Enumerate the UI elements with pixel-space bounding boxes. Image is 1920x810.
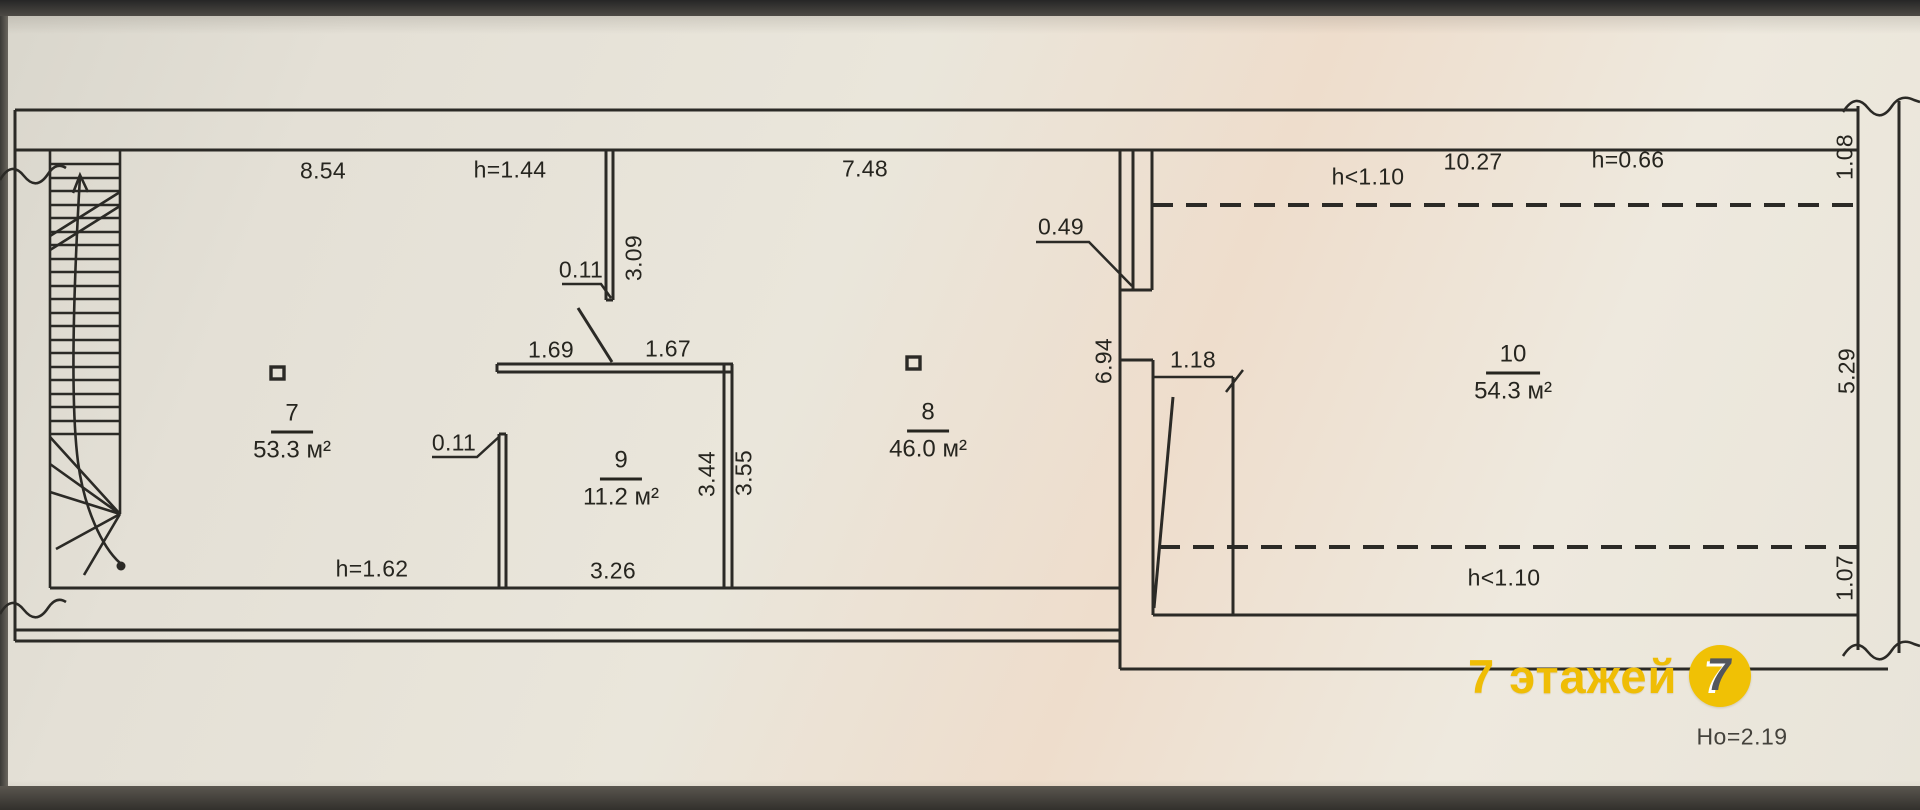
- room-label-9: 9 11.2 м²: [583, 449, 659, 510]
- dim-top-left-width: 8.54: [300, 160, 346, 183]
- dim-wall-offset-left: 0.11: [432, 432, 476, 455]
- dim-wall-offset-top: 0.11: [559, 259, 603, 282]
- dim-opening-right: 1.67: [645, 338, 691, 361]
- room-label-10: 10 54.3 м²: [1474, 343, 1552, 404]
- watermark-text: 7 этажей: [1468, 649, 1677, 704]
- dim-opening-left: 1.69: [528, 339, 574, 362]
- room-9-number: 9: [600, 449, 641, 481]
- dim-top-right-width: 10.27: [1443, 151, 1502, 174]
- dim-room9-inner-depth: 3.44: [696, 451, 719, 497]
- room-7-area: 53.3 м²: [253, 439, 331, 463]
- watermark-logo-icon: 7: [1689, 645, 1751, 707]
- dim-room9-outer-depth: 3.55: [733, 450, 756, 496]
- dim-door-height: h=1.44: [474, 159, 547, 182]
- break-marks: [0, 98, 1920, 660]
- dim-room9-width: 3.26: [590, 560, 636, 583]
- dim-right-seg-top: 1.08: [1834, 134, 1857, 180]
- dim-right-seg-bottom: 1.07: [1834, 555, 1857, 601]
- dim-stair-headroom: h=1.62: [336, 558, 409, 581]
- dim-opening-mid: 1.18: [1170, 349, 1216, 372]
- room-8-area: 46.0 м²: [889, 438, 967, 462]
- dim-partition-length: 3.09: [623, 235, 646, 281]
- vent-square-icons: [271, 357, 920, 379]
- watermark-logo-digit: 7: [1704, 647, 1735, 701]
- staircase: [50, 150, 126, 588]
- floor-plan-photo: 8.54 h=1.44 7.48 0.11 3.09 1.69 1.67 0.1…: [0, 0, 1920, 810]
- room-10-number: 10: [1486, 343, 1541, 375]
- dim-right-seg-mid: 5.29: [1836, 348, 1859, 394]
- dim-mid-wall-length: 6.94: [1093, 338, 1116, 384]
- walls: [15, 101, 1899, 669]
- room-9-area: 11.2 м²: [583, 486, 659, 510]
- room-label-7: 7 53.3 м²: [253, 402, 331, 463]
- dim-ceiling-limit-bottom: h<1.10: [1468, 567, 1541, 590]
- dim-top-mid-width: 7.48: [842, 158, 888, 181]
- room-10-area: 54.3 м²: [1474, 380, 1552, 404]
- room-8-number: 8: [907, 401, 948, 433]
- room-label-8: 8 46.0 м²: [889, 401, 967, 462]
- room-7-number: 7: [271, 402, 312, 434]
- dim-recess-width: 0.49: [1038, 216, 1084, 239]
- height-note: Но=2.19: [1696, 724, 1787, 751]
- agency-watermark: 7 этажей 7: [1468, 645, 1751, 707]
- dim-ceiling-limit-top: h<1.10: [1332, 166, 1405, 189]
- dim-eaves-height: h=0.66: [1592, 149, 1665, 172]
